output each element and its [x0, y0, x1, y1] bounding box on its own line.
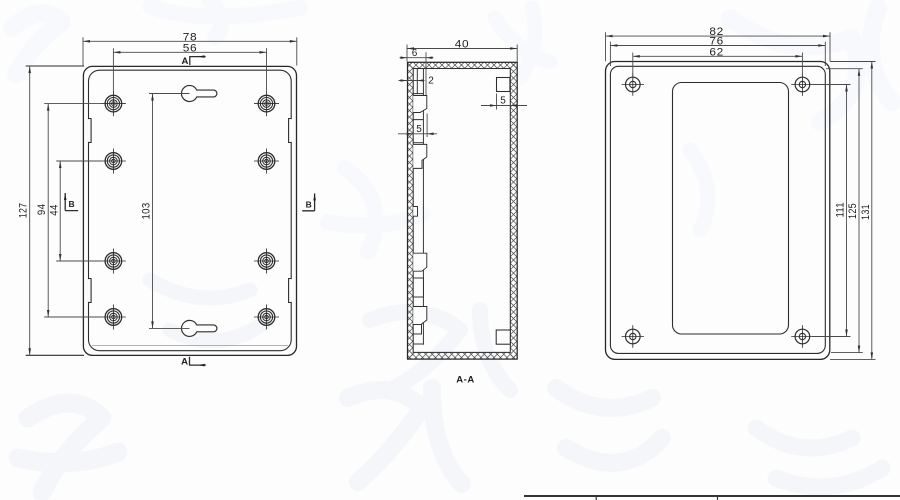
svg-text:B: B — [306, 199, 312, 209]
svg-text:6: 6 — [412, 48, 418, 59]
svg-text:5: 5 — [416, 124, 422, 135]
svg-text:A: A — [181, 56, 188, 67]
svg-text:B: B — [69, 199, 75, 209]
svg-text:5: 5 — [500, 96, 506, 107]
svg-text:103: 103 — [141, 203, 153, 220]
svg-text:40: 40 — [455, 39, 470, 51]
svg-text:94: 94 — [36, 204, 48, 216]
svg-text:111: 111 — [835, 202, 847, 218]
svg-text:44: 44 — [48, 204, 60, 216]
svg-text:A-A: A-A — [456, 374, 474, 385]
svg-text:62: 62 — [709, 46, 724, 58]
svg-text:A: A — [181, 356, 188, 367]
svg-text:127: 127 — [18, 203, 30, 219]
svg-text:125: 125 — [847, 203, 859, 219]
svg-text:2: 2 — [428, 76, 434, 87]
svg-text:56: 56 — [183, 42, 198, 54]
svg-text:131: 131 — [860, 204, 872, 220]
